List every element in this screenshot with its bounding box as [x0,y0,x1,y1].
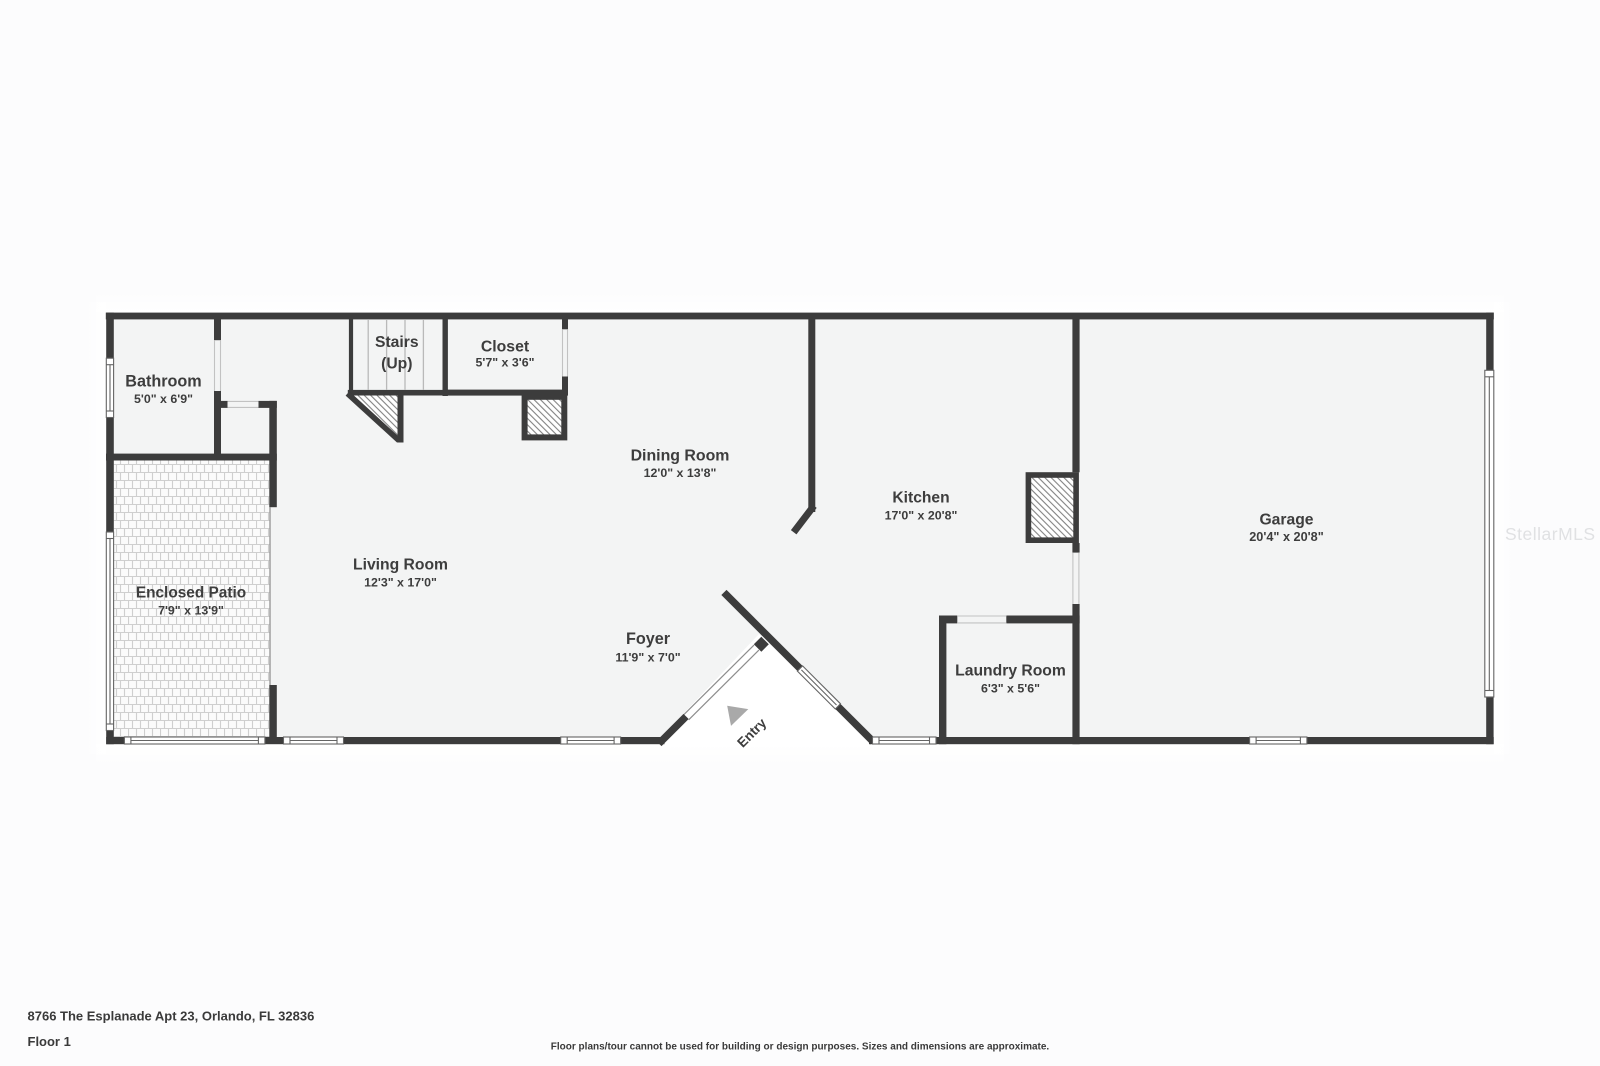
svg-text:12'3" x 17'0": 12'3" x 17'0" [364,576,437,590]
svg-text:(Up): (Up) [381,356,412,373]
svg-text:5'0" x 6'9": 5'0" x 6'9" [134,392,193,406]
svg-text:12'0" x 13'8": 12'0" x 13'8" [644,466,717,480]
svg-text:Closet: Closet [481,339,530,356]
svg-text:8766 The Esplanade Apt 23, Orl: 8766 The Esplanade Apt 23, Orlando, FL 3… [28,1009,315,1024]
svg-text:5'7" x 3'6": 5'7" x 3'6" [476,356,535,370]
svg-text:Garage: Garage [1259,512,1313,529]
svg-text:Enclosed Patio: Enclosed Patio [136,585,246,602]
svg-text:Floor plans/tour cannot be use: Floor plans/tour cannot be used for buil… [551,1042,1050,1053]
svg-text:7'9" x 13'9": 7'9" x 13'9" [158,604,224,618]
svg-text:Kitchen: Kitchen [892,490,949,507]
svg-text:StellarMLS: StellarMLS [1505,524,1596,544]
svg-text:Floor 1: Floor 1 [28,1034,71,1049]
svg-text:Dining Room: Dining Room [631,447,730,464]
svg-text:Laundry Room: Laundry Room [955,663,1066,680]
svg-text:Foyer: Foyer [626,630,671,648]
svg-text:Living Room: Living Room [353,557,448,574]
svg-text:Stairs: Stairs [375,334,419,351]
svg-text:Bathroom: Bathroom [125,373,201,391]
svg-text:11'9" x 7'0": 11'9" x 7'0" [615,650,680,664]
svg-text:20'4" x 20'8": 20'4" x 20'8" [1249,530,1324,544]
svg-text:6'3" x 5'6": 6'3" x 5'6" [981,682,1040,696]
svg-text:17'0" x 20'8": 17'0" x 20'8" [885,509,958,523]
